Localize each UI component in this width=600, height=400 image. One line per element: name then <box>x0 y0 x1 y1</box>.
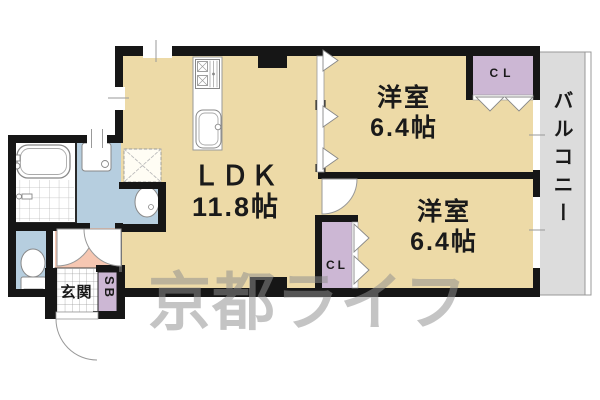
bedroom2-label: 洋室 6.4帖 <box>368 197 520 257</box>
kitchen-counter-icon <box>193 57 222 150</box>
wall-basin-bottom <box>119 224 166 232</box>
floorplan-canvas: ＬＤＫ 11.8帖 洋室 6.4帖 洋室 6.4帖 バルコニー CL CL SB… <box>0 0 600 400</box>
bedroom1-size: 6.4帖 <box>328 113 480 143</box>
closet1-label: CL <box>472 66 533 80</box>
window-top <box>143 44 172 58</box>
window-washroom-top <box>87 133 107 145</box>
entrance-door-swing <box>56 319 97 360</box>
wall-outer-left <box>8 135 16 297</box>
shoebox-label: SB <box>99 276 117 300</box>
wall-toilet-right <box>46 228 53 272</box>
ldk-size: 11.8帖 <box>155 192 317 223</box>
bedroom1-name: 洋室 <box>328 83 480 113</box>
washing-machine-pan-icon <box>82 143 111 171</box>
balcony-label: バルコニー <box>547 90 576 300</box>
wall-right-2 <box>533 170 540 197</box>
wall-right-1 <box>533 46 540 100</box>
bedroom1-label: 洋室 6.4帖 <box>328 83 480 143</box>
toilet-icon <box>21 249 46 291</box>
wall-right-3 <box>533 268 540 297</box>
ldk-label: ＬＤＫ 11.8帖 <box>155 161 317 223</box>
entrance-door-leaf <box>56 312 98 319</box>
pillar-top <box>258 56 287 68</box>
window-bedroom2 <box>533 197 540 268</box>
bedroom2-name: 洋室 <box>368 197 520 227</box>
ldk-name: ＬＤＫ <box>155 161 317 192</box>
entrance-label: 玄関 <box>55 281 98 302</box>
sink-icon <box>196 110 221 148</box>
wall-rooms-divider <box>318 172 538 179</box>
watermark: 京都ライフ <box>148 252 468 343</box>
bathroom-tiles <box>16 180 74 221</box>
